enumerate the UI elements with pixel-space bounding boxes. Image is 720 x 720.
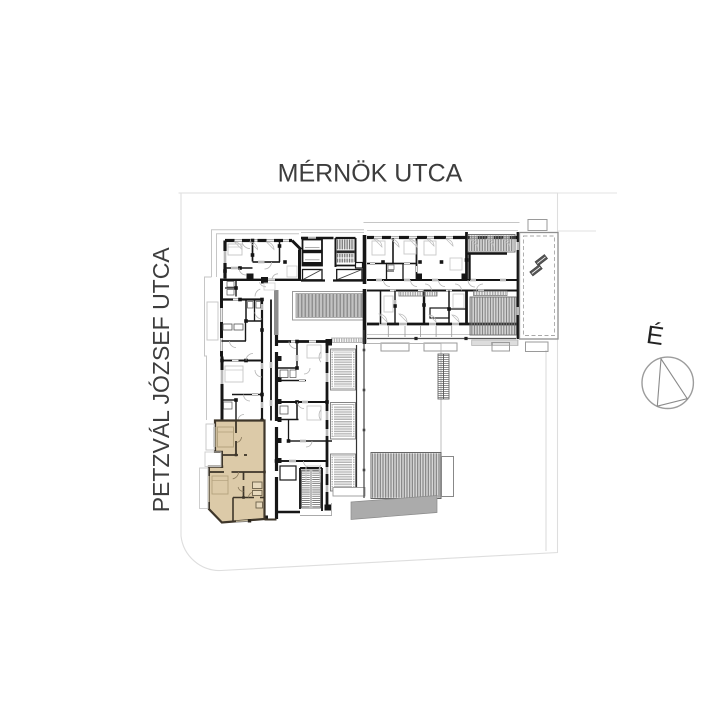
svg-text:PETZVÁL JÓZSEF UTCA: PETZVÁL JÓZSEF UTCA [148,247,174,513]
svg-text:MÉRNÖK UTCA: MÉRNÖK UTCA [278,159,463,188]
